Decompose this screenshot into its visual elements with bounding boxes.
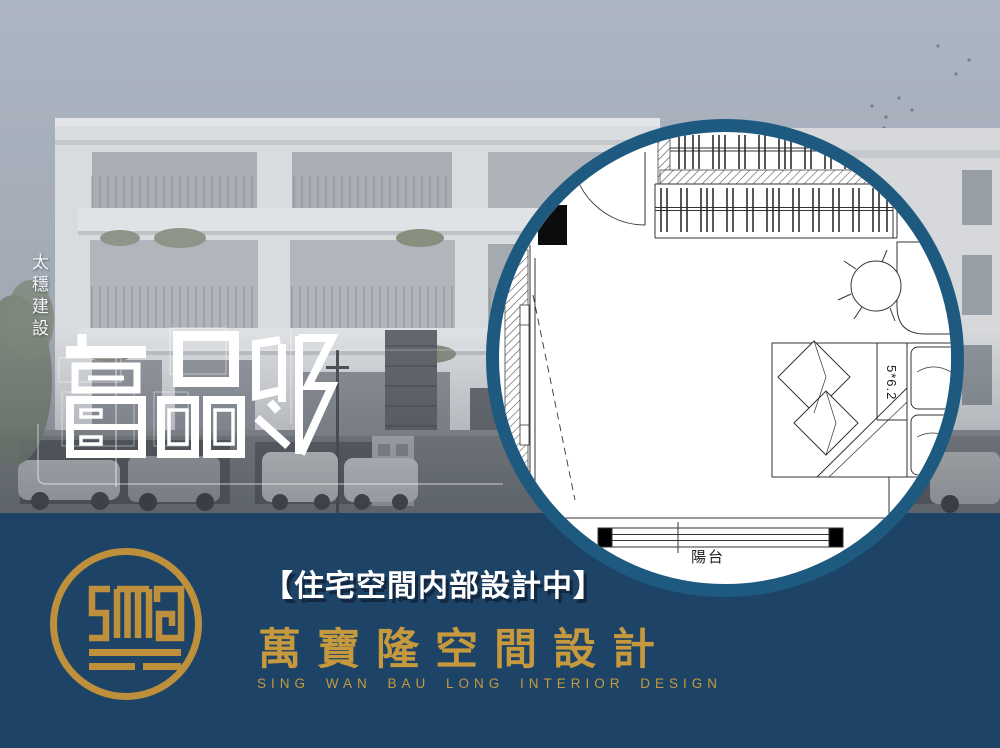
wall-left bbox=[530, 245, 535, 518]
floorplan-inset: 陽台 5*6.2 bbox=[486, 119, 964, 597]
swb-monogram-icon bbox=[46, 544, 206, 704]
title-char-3 bbox=[256, 330, 332, 454]
title-char-2 bbox=[154, 328, 241, 454]
tagline: 【住宅空間内部設計中】 bbox=[263, 561, 604, 605]
project-title-artwork bbox=[66, 332, 334, 458]
company-logo bbox=[46, 544, 206, 709]
logo-letter-s bbox=[89, 589, 110, 638]
floorplan-drawing bbox=[499, 132, 951, 584]
poster: 太穩建設 富品邸 bbox=[0, 0, 1000, 748]
office-chair-icon bbox=[838, 250, 901, 321]
wall-solid bbox=[538, 205, 567, 245]
company-name-en: SING WAN BAU LONG INTERIOR DESIGN bbox=[257, 676, 722, 691]
bed-size-label: 5*6.2 bbox=[884, 365, 899, 400]
projection-dashed-line bbox=[533, 295, 575, 500]
logo-letter-w bbox=[117, 589, 149, 638]
company-name-zh: 萬寶隆空間設計 bbox=[258, 615, 671, 677]
developer-label: 太穩建設 bbox=[26, 253, 51, 341]
double-bed bbox=[772, 341, 951, 477]
logo-letter-a bbox=[157, 589, 181, 638]
project-title: 富品邸 bbox=[66, 332, 334, 458]
tv-cabinet bbox=[520, 305, 529, 445]
title-char-1 bbox=[59, 334, 146, 454]
balcony-label: 陽台 bbox=[691, 546, 725, 567]
balcony-window bbox=[535, 477, 889, 553]
